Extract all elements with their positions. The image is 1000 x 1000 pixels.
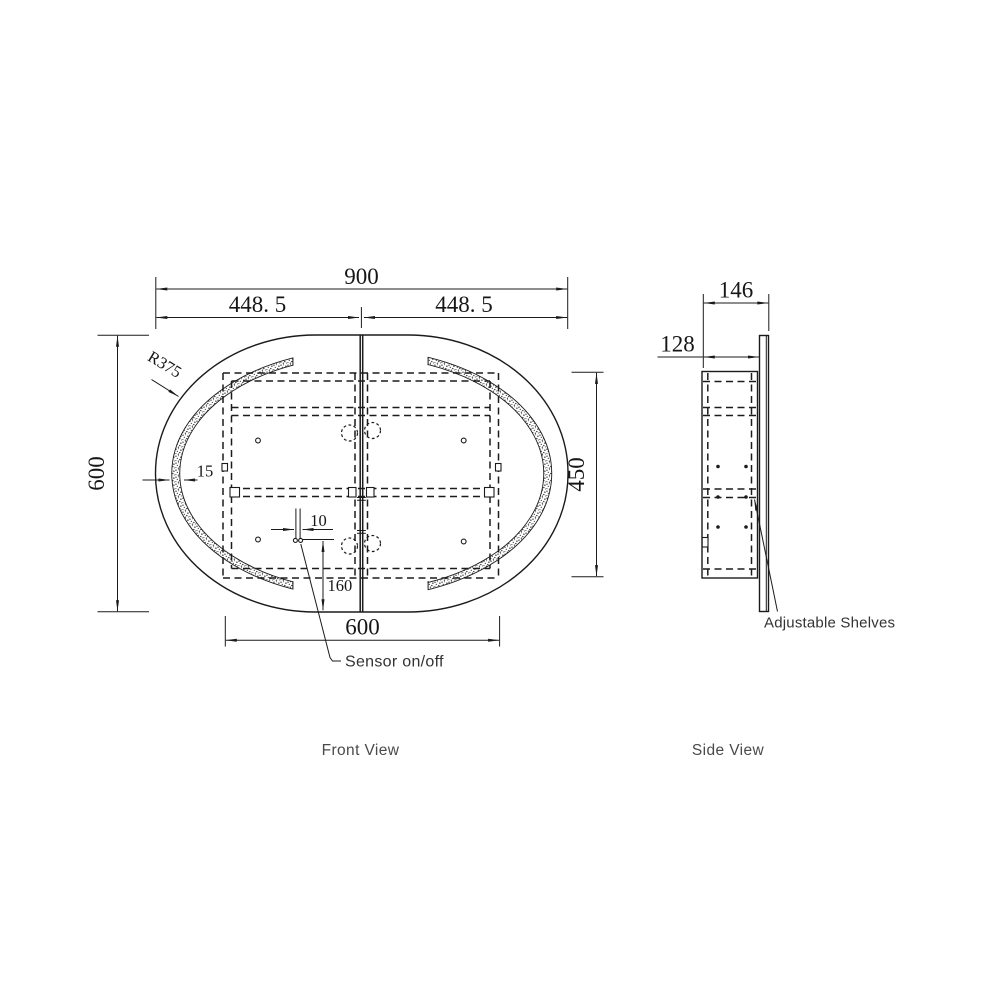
dim-half-width-left-value: 448. 5	[229, 292, 287, 317]
cabinet-side-hidden-lines	[703, 373, 757, 577]
technical-drawing-page: 900 448. 5 448. 5 R375 600 450	[0, 0, 1000, 1000]
dim-sensor-height-value: 160	[328, 576, 353, 595]
dim-half-widths: 448. 5 448. 5	[156, 292, 567, 328]
front-view-drawing: 900 448. 5 448. 5 R375 600 450	[84, 264, 604, 759]
dim-led-band-width-value: 15	[197, 462, 214, 481]
sensor-label: Sensor on/off	[345, 654, 444, 671]
dim-half-width-right-value: 448. 5	[435, 292, 493, 317]
dim-total-depth-value: 146	[719, 278, 754, 303]
dim-cabinet-width-value: 600	[345, 615, 380, 640]
shelves-annotation: Adjustable Shelves	[755, 500, 896, 632]
dim-cabinet-depth: 128	[658, 332, 760, 358]
mirror-cabinet-drawing: 900 448. 5 448. 5 R375 600 450	[0, 0, 1000, 1000]
led-band	[172, 349, 552, 597]
dim-cabinet-height: 450	[564, 372, 604, 576]
dim-cabinet-depth-value: 128	[660, 332, 695, 357]
dim-corner-radius-value: R375	[145, 347, 185, 382]
cabinet-body	[702, 372, 758, 579]
dim-overall-height-value: 600	[84, 456, 109, 491]
mirror-panel	[760, 336, 769, 612]
shelf-notches	[222, 464, 501, 498]
dim-sensor-height: 160	[323, 541, 352, 610]
door-split-line	[360, 336, 363, 612]
dim-cabinet-height-value: 450	[564, 457, 589, 492]
shelves-label: Adjustable Shelves	[764, 615, 895, 632]
dim-overall-width-value: 900	[344, 264, 379, 289]
side-view-drawing: 146 128 Adjustable Shelves Side View	[658, 278, 896, 760]
dim-sensor-offset: 10	[271, 511, 333, 530]
side-bottom-notch	[702, 538, 708, 548]
mirror-oval-outline	[156, 335, 569, 612]
sensor-annotation: Sensor on/off	[301, 544, 444, 671]
dim-cabinet-width: 600	[225, 615, 499, 647]
dim-sensor-offset-value: 10	[310, 511, 327, 530]
dim-overall-height: 600	[84, 335, 149, 612]
dim-corner-radius: R375	[145, 347, 185, 397]
door-catch-marks	[357, 498, 366, 534]
front-view-label: Front View	[322, 742, 400, 759]
side-view-label: Side View	[692, 742, 765, 759]
